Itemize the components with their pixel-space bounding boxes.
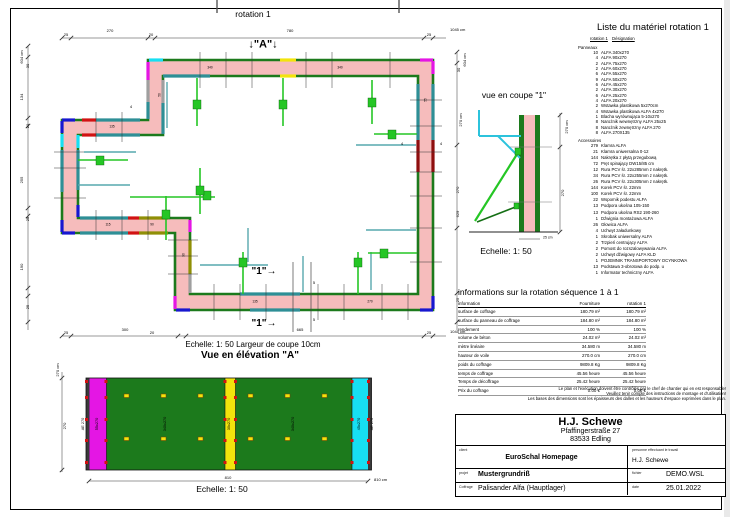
table-row: volume de béton 24.02 m³ 24.02 m³ (458, 334, 646, 343)
row-label: hauteur de voile (458, 352, 550, 360)
floating-label: 604 cm (463, 53, 467, 66)
floating-label: 4 (440, 142, 442, 146)
row-rotation-value: 9809.8 Kg (600, 361, 646, 369)
floating-label: "1"→ (251, 319, 276, 329)
floating-label: 55 (424, 98, 427, 102)
item-quantity: 8 (578, 130, 598, 135)
floating-label: 810 (225, 476, 232, 480)
accessoires-list: 279 Klamra ALFA 21 Klamra uniwersalna 0-… (578, 143, 728, 277)
floating-label: 25 (64, 331, 68, 335)
floating-label: 25 (427, 33, 431, 37)
row-rotation-value: 34.580 m (600, 343, 646, 351)
floating-label: 780 (287, 29, 294, 33)
project-value: Mustergrundriß (478, 471, 530, 478)
floating-label: 25 (64, 33, 68, 37)
info-table-title: informations sur la rotation séquence 1 … (458, 287, 646, 297)
floating-label: 30x270 (228, 418, 232, 430)
floating-label: 190 (20, 264, 24, 271)
title-block: H.J. Schewe Pfaffingerstraße 27 83533 Ed… (455, 414, 726, 497)
material-list-item: 8 ALFA 270X135 (578, 130, 728, 135)
row-rotation-value: 24.02 m³ (600, 334, 646, 342)
material-list-columns: rotation 1 Désignation (578, 36, 728, 43)
floating-label: 270 (561, 190, 565, 197)
note-line: Les bases des dimensions sont les épaiss… (440, 396, 726, 401)
floating-label: 665 (297, 328, 304, 332)
floating-label: 255 (20, 177, 24, 184)
row-label: poids du coffrage (458, 361, 550, 369)
floating-label: 45x270 (358, 418, 362, 430)
floating-label: 5 (313, 318, 315, 322)
divider (627, 446, 628, 495)
floating-label: 135 (109, 125, 114, 128)
client-label: client (459, 448, 467, 452)
row-fourniture-value: 184.80 m² (550, 317, 600, 325)
material-list-title: Liste du matériel rotation 1 (578, 22, 728, 33)
company-address-city: 83533 Edling (456, 436, 725, 444)
row-label: surface du panneau de coffrage (458, 317, 550, 325)
panneaux-list: 10 ALFA 340x270 4 ALFA 90x270 2 ALFA 75x… (578, 50, 728, 136)
column-information: information (458, 301, 550, 306)
item-name: ALFA 270X135 (601, 130, 630, 135)
floating-label: 4 (130, 105, 132, 109)
floating-label: 340x270 (164, 417, 168, 432)
floating-label: AE 270 (82, 418, 86, 430)
floating-label: Echelle: 1: 50 (480, 247, 532, 256)
row-rotation-value: 184.80 m² (600, 317, 646, 325)
row-label: Temps de décoffrage (458, 378, 550, 386)
push-pull-prop (475, 151, 519, 221)
floating-label: 55x270 (96, 418, 100, 430)
item-quantity: 1 (578, 270, 598, 276)
floating-label: 115 (105, 223, 110, 226)
floating-label: 25 (26, 305, 30, 309)
material-list-item: 1 Informator techniczny ALFA (578, 270, 728, 276)
title-block-grid: client EuroSchal Homepage personne effec… (456, 446, 725, 495)
row-label: surface de coffrage (458, 308, 550, 316)
row-fourniture-value: 180.79 m² (550, 308, 600, 316)
table-row: rendement 100 % 100 % (458, 326, 646, 335)
floating-label: 25 (427, 331, 431, 335)
floating-label: 135 (252, 300, 257, 303)
floating-label: 270 cm (459, 113, 463, 126)
column-designation: Désignation (612, 36, 635, 41)
person-label: personne effectuant le travail (632, 448, 678, 452)
floating-label: 270 (456, 187, 460, 194)
person-value: H.J. Schewe (632, 457, 669, 464)
table-row: surface du panneau de coffrage 184.80 m²… (458, 317, 646, 326)
table-row: surface de coffrage 180.79 m² 180.79 m² (458, 308, 646, 317)
table-row: poids du coffrage 9809.8 Kg 9809.8 Kg (458, 361, 646, 370)
floating-label: 604 cm (20, 50, 24, 63)
file-label: fichier (632, 471, 642, 475)
floating-label: 340x270 (292, 417, 296, 432)
floating-label: Vue en élévation "A" (201, 351, 299, 361)
row-label: mètre linéaire (458, 343, 550, 351)
row-label: rendement (458, 326, 550, 334)
floating-label: 90 (150, 223, 154, 226)
row-label: volume de béton (458, 334, 550, 342)
floating-label: AE 270 (371, 418, 375, 430)
info-table-header: information Fourniture rotation 1 (458, 301, 646, 308)
floating-label: Echelle: 1: 50 (196, 485, 248, 494)
floating-label: 810 cm (374, 478, 387, 482)
row-label: temps de coffrage (458, 370, 550, 378)
floating-label: 340 (337, 66, 342, 69)
date-label: date (632, 485, 639, 489)
row-rotation-value: 45.56 heure (600, 370, 646, 378)
floating-label: "1"→ (251, 267, 276, 277)
info-table-rows: surface de coffrage 180.79 m² 180.79 m² … (458, 308, 646, 396)
column-rotation1: rotation 1 (600, 301, 646, 306)
elevation-view (62, 372, 372, 481)
platform-bracket (479, 110, 521, 158)
row-rotation-value: 180.79 m² (600, 308, 646, 316)
coffrage-label: Coffrage (459, 485, 473, 489)
table-row: temps de coffrage 45.56 heure 45.56 heur… (458, 370, 646, 379)
floating-label: 4 (401, 142, 403, 146)
column-rotation: rotation 1 (590, 36, 608, 41)
project-label: projet (459, 471, 468, 475)
floating-label: 300 (122, 328, 129, 332)
client-value: EuroSchal Homepage (456, 454, 627, 461)
item-name: Informator techniczny ALFA (601, 270, 654, 276)
table-row: hauteur de voile 270.0 cm 270.0 cm (458, 352, 646, 361)
rotation-info-table: informations sur la rotation séquence 1 … (458, 287, 646, 396)
floating-label: 270 cm (565, 120, 569, 133)
row-fourniture-value: 25.42 heure (550, 378, 600, 386)
column-fourniture: Fourniture (550, 301, 600, 306)
row-rotation-value: 25.42 heure (600, 378, 646, 386)
floating-label: 270 (63, 423, 67, 430)
floating-label: 5 (313, 281, 315, 285)
company-name: H.J. Schewe (456, 415, 725, 428)
floating-label: Echelle: 1: 50 Largeur de coupe 10cm (185, 341, 320, 349)
material-list: Liste du matériel rotation 1 rotation 1 … (578, 22, 728, 277)
floating-label: 340 (207, 66, 212, 69)
floating-label: 270 (367, 300, 372, 303)
floating-label: 30 (457, 68, 461, 72)
file-value: DEMO.WSL (666, 471, 704, 478)
floating-label: 20 (149, 33, 153, 37)
row-fourniture-value: 100 % (550, 326, 600, 334)
floating-label: 134 (20, 94, 24, 101)
floating-label: 30 (26, 64, 30, 68)
floating-label: 25 cm (543, 236, 553, 240)
row-fourniture-value: 34.580 m (550, 343, 600, 351)
floating-label: ↓"A"↓ (248, 40, 277, 51)
floating-label: 90 (182, 253, 185, 257)
row-fourniture-value: 270.0 cm (550, 352, 600, 360)
floating-label: rotation 1 (235, 10, 270, 19)
disclaimer-notes: Le plan et l'exécution doivent être cont… (440, 386, 726, 401)
floating-label: 20 (26, 124, 30, 128)
floating-label: 629 (456, 211, 460, 218)
company-address-street: Pfaffingerstraße 27 (456, 428, 725, 436)
title-block-header: H.J. Schewe Pfaffingerstraße 27 83533 Ed… (456, 415, 725, 446)
floating-label: vue en coupe "1" (482, 91, 546, 100)
floating-label: 1045 cm (450, 28, 465, 32)
divider (456, 468, 725, 469)
row-rotation-value: 100 % (600, 326, 646, 334)
floating-label: 20 (150, 331, 154, 335)
row-rotation-value: 270.0 cm (600, 352, 646, 360)
row-fourniture-value: 45.56 heure (550, 370, 600, 378)
date-value: 25.01.2022 (666, 485, 701, 492)
row-fourniture-value: 9809.8 Kg (550, 361, 600, 369)
row-fourniture-value: 24.02 m³ (550, 334, 600, 342)
floating-label: 25 (26, 217, 30, 221)
floating-label: 50 (158, 93, 161, 97)
divider (456, 482, 725, 483)
floating-label: 270 (107, 29, 114, 33)
floor-plan (62, 60, 433, 332)
floating-label: 270 cm (56, 363, 60, 376)
table-row: mètre linéaire 34.580 m 34.580 m (458, 343, 646, 352)
coffrage-value: Palisander Alfa (Hauptlager) (478, 485, 566, 492)
section-view (469, 110, 560, 239)
